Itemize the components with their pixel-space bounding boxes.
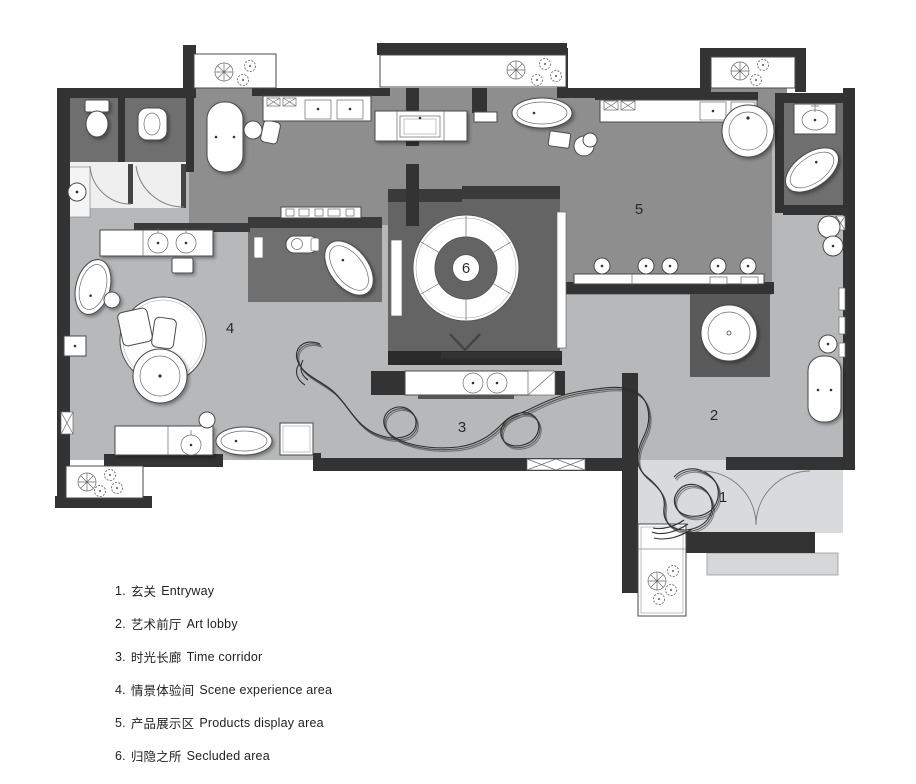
bathtub-oval: [512, 98, 572, 128]
legend: 1. 玄关 Entryway 2. 艺术前厅 Art lobby 3. 时光长廊…: [115, 574, 332, 772]
legend-zh: 玄关: [131, 581, 156, 600]
round-sink: [68, 183, 86, 201]
legend-en: Time corridor: [187, 650, 263, 664]
floor-plan-page: 1 2 3 4 5 6 1. 玄关 Entryway 2. 艺术前厅 Art l…: [0, 0, 916, 784]
wall-panel: [254, 237, 263, 258]
bath-mat: [548, 131, 571, 149]
shower-tray: [280, 423, 313, 455]
area-label-2: 2: [710, 407, 718, 424]
wall-mounted-box: [64, 336, 86, 356]
window-hatch: [527, 459, 585, 470]
legend-en: Scene experience area: [199, 683, 332, 697]
legend-en: Art lobby: [187, 617, 238, 631]
legend-zh: 情景体验间: [131, 680, 195, 699]
round-bathtub-niche: [722, 105, 774, 157]
planter-bottom-left: [66, 466, 143, 498]
legend-num: 2.: [115, 617, 126, 631]
sliding-door-panel: [557, 212, 566, 348]
planter-top-center: [380, 55, 566, 87]
threshold-bar: [441, 352, 561, 358]
legend-num: 3.: [115, 650, 126, 664]
legend-item-entryway: 1. 玄关 Entryway: [115, 574, 332, 607]
legend-item-scene-experience: 4. 情景体验间 Scene experience area: [115, 673, 332, 706]
toilet: [138, 108, 167, 140]
wall-mounted-box: [61, 412, 73, 434]
legend-num: 1.: [115, 584, 126, 598]
legend-zh: 归隐之所: [131, 746, 182, 765]
legend-num: 5.: [115, 716, 126, 730]
entry-paving: [707, 553, 838, 575]
bathtub-vertical: [207, 102, 243, 172]
planter-top-left: [194, 54, 276, 88]
shelf-with-items: [281, 207, 361, 218]
legend-en: Secluded area: [187, 749, 270, 763]
sink-counter-bottom: [115, 426, 213, 455]
legend-zh: 艺术前厅: [131, 614, 182, 633]
legend-item-art-lobby: 2. 艺术前厅 Art lobby: [115, 607, 332, 640]
legend-num: 4.: [115, 683, 126, 697]
legend-zh: 产品展示区: [131, 713, 195, 732]
island-counter: [375, 111, 467, 141]
area-label-6: 6: [462, 260, 470, 277]
area-label-1: 1: [719, 489, 727, 506]
legend-en: Entryway: [161, 584, 214, 598]
bathtub-vertical-right: [808, 356, 841, 422]
area-label-4: 4: [226, 320, 234, 337]
lounge-chair: [151, 317, 177, 350]
legend-item-products-display: 5. 产品展示区 Products display area: [115, 706, 332, 739]
area-label-5: 5: [635, 201, 643, 218]
sink-counter-top: [263, 96, 371, 121]
lounge-chair: [117, 307, 153, 346]
vanity-sink: [794, 104, 836, 134]
toilet: [85, 100, 109, 137]
bathtub-oval-bottom: [216, 427, 272, 455]
legend-item-secluded-area: 6. 归隐之所 Secluded area: [115, 739, 332, 772]
area-label-3: 3: [458, 419, 466, 436]
legend-item-time-corridor: 3. 时光长廊 Time corridor: [115, 640, 332, 673]
round-bathtub-platform: [701, 305, 757, 361]
legend-num: 6.: [115, 749, 126, 763]
floor-entry: [638, 460, 843, 533]
wall-shelf: [474, 112, 497, 122]
legend-zh: 时光长廊: [131, 647, 182, 666]
planter-top-right: [711, 57, 795, 88]
legend-en: Products display area: [199, 716, 323, 730]
toilet-horizontal: [286, 236, 319, 253]
planter-entry: [638, 524, 686, 616]
sink-counter-secluded: [405, 371, 555, 399]
stool: [199, 412, 215, 428]
sliding-door-panel: [391, 240, 402, 316]
